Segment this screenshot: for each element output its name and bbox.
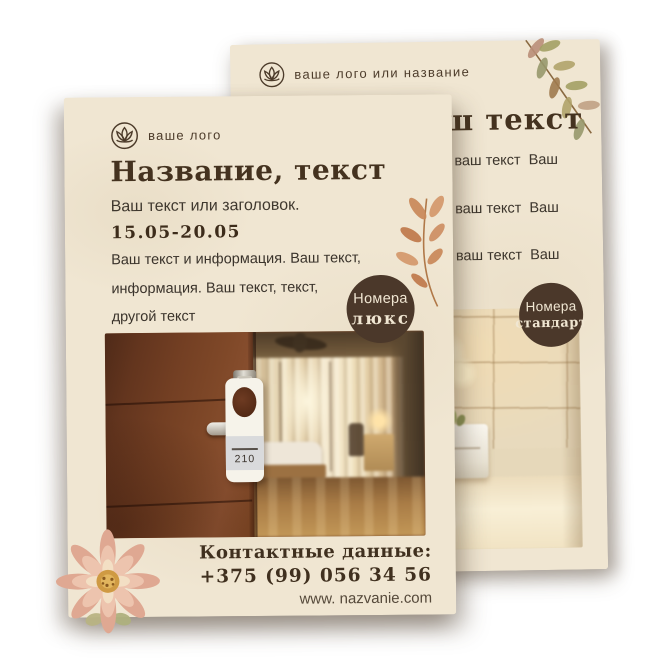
- bright-window: [280, 357, 333, 445]
- lotus-logo-icon: [258, 61, 285, 88]
- back-text-line: т ваш текст Ваш: [444, 200, 559, 218]
- back-text-line: т ваш текст Ваш: [444, 152, 559, 170]
- lamp-glow: [365, 407, 393, 435]
- back-logo-label: ваше лого или название: [294, 64, 470, 82]
- badge-label: Номера: [353, 290, 408, 306]
- front-title: Название, текст: [110, 153, 386, 188]
- front-logo-row: ваше лого: [110, 120, 222, 150]
- wood-floor: [244, 477, 426, 538]
- front-logo-label: ваше лого: [148, 127, 222, 143]
- contacts-block: Контактные данные: +375 (99) 056 34 56 w…: [199, 541, 432, 609]
- hotel-door-photo: 210: [105, 331, 426, 539]
- flyer-mockup-scene: ваше лого или название ваш текст т ваш т…: [0, 0, 670, 670]
- chair: [349, 423, 364, 456]
- bed: [256, 441, 322, 466]
- contacts-heading: Контактные данные:: [199, 541, 432, 564]
- badge-lux-rooms: Номера люкс: [346, 275, 415, 344]
- room-number: 210: [226, 453, 264, 465]
- watercolor-dahlia-icon: [53, 527, 162, 636]
- lotus-logo-icon: [110, 121, 139, 150]
- blurred-room-background: [243, 331, 426, 538]
- flyer-front: ваше лого Название, текст Ваш текст или …: [64, 94, 457, 617]
- badge-label: Номера: [525, 299, 576, 315]
- phone-number: +375 (99) 056 34 56: [199, 565, 432, 588]
- website: www. nazvanie.com: [199, 590, 432, 609]
- back-logo-row: ваше лого или название: [258, 58, 470, 88]
- back-text-line: т ваш текст Ваш: [445, 247, 560, 265]
- badge-label: стандарт: [515, 315, 587, 331]
- badge-label: люкс: [351, 308, 410, 328]
- front-subtitle: Ваш текст или заголовок.: [111, 197, 300, 217]
- hanger-hole: [232, 387, 256, 417]
- front-body-text: Ваш текст и информация. Ваш текст, инфор…: [111, 244, 362, 332]
- date-range: 15.05-20.05: [111, 222, 241, 243]
- door-hanger-tag: 210: [225, 378, 264, 482]
- credenza: [364, 434, 394, 471]
